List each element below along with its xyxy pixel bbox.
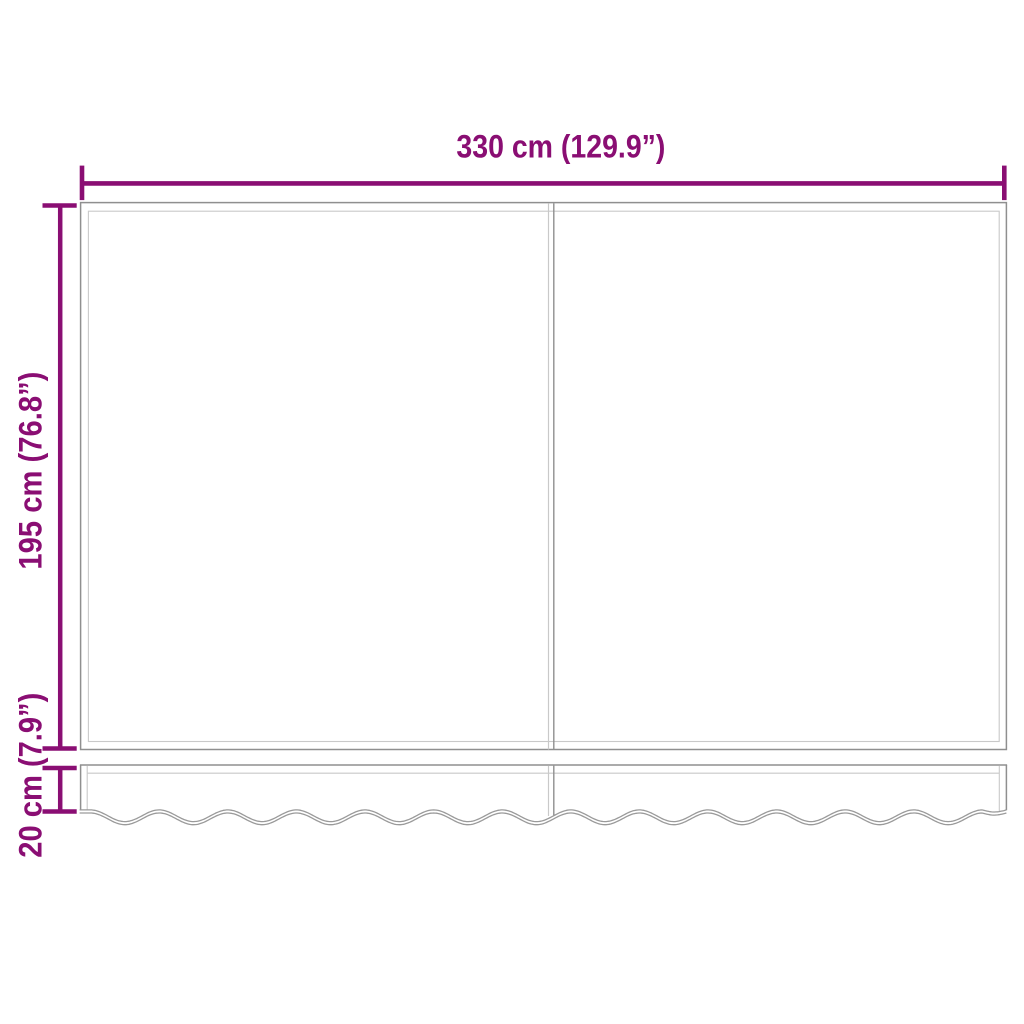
svg-text:20 cm (7.9”): 20 cm (7.9”)	[13, 693, 49, 858]
svg-text:330 cm (129.9”): 330 cm (129.9”)	[456, 129, 665, 165]
svg-text:195 cm (76.8”): 195 cm (76.8”)	[13, 372, 49, 570]
